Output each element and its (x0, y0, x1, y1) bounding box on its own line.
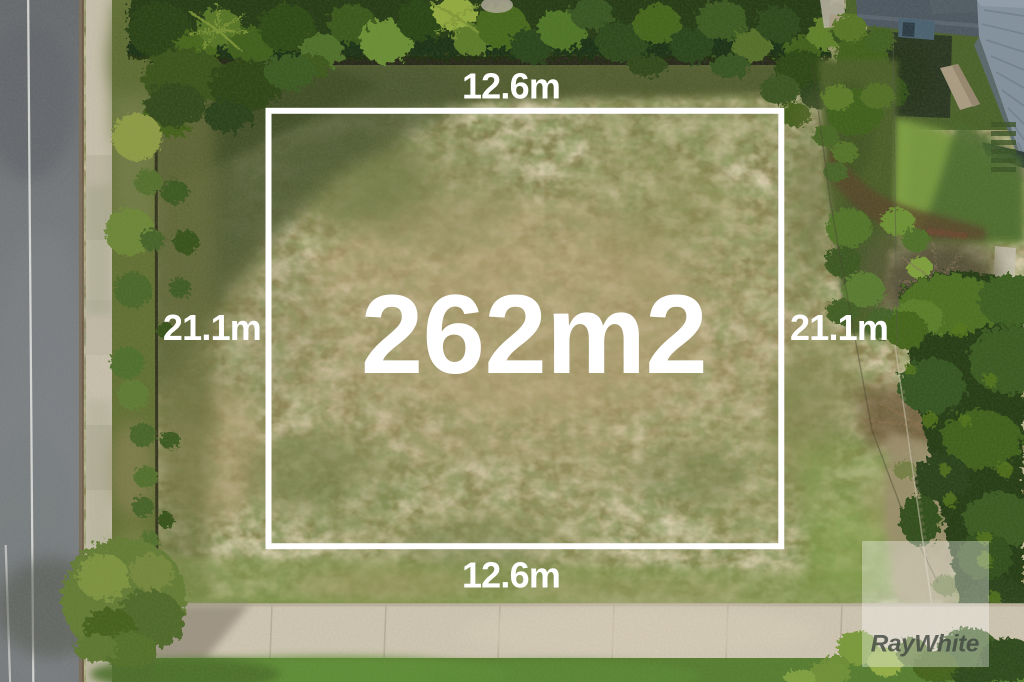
svg-text:12.6m: 12.6m (462, 66, 560, 107)
svg-text:21.1m: 21.1m (163, 307, 261, 348)
svg-text:21.1m: 21.1m (790, 307, 888, 348)
svg-text:12.6m: 12.6m (462, 555, 560, 596)
svg-text:262m2: 262m2 (361, 272, 707, 397)
svg-text:RayWhite: RayWhite (871, 631, 979, 658)
